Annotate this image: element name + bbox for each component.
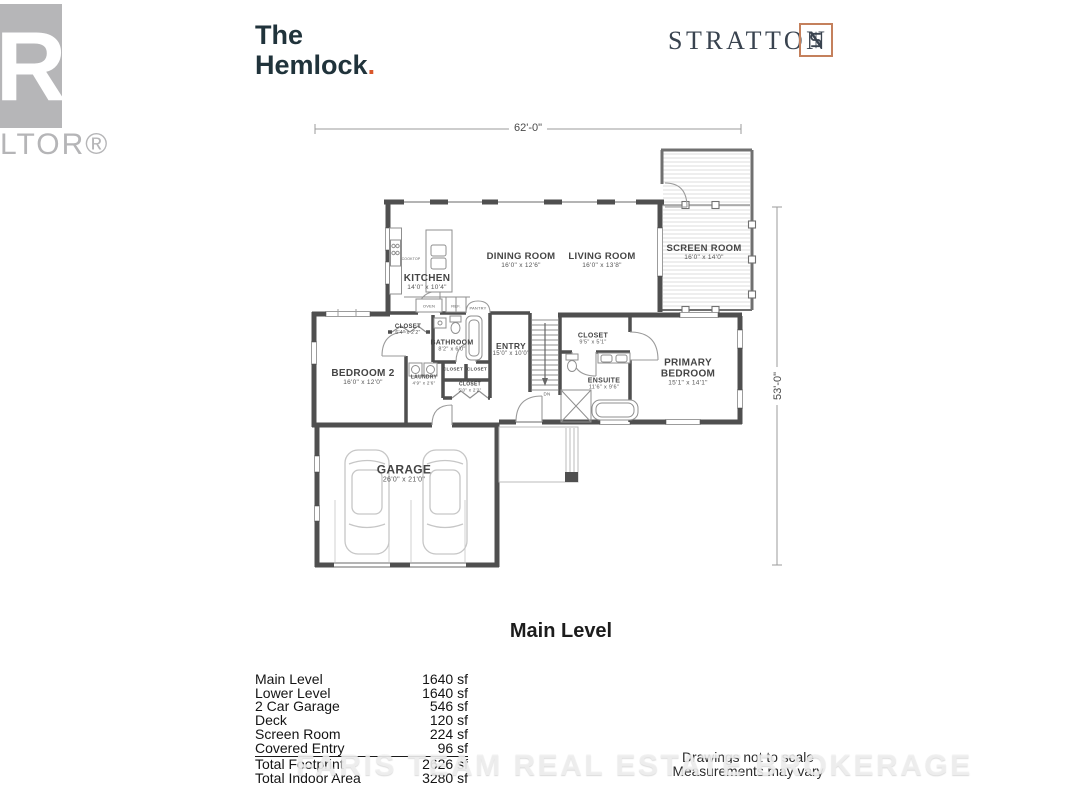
room-label-closet-small-b: CLOSET — [467, 367, 487, 372]
brokerage-watermark: FARIS TEAM REAL ESTATE BROKERAGE — [296, 749, 973, 783]
room-label-closet-bedroom2: CLOSET6'4" x 2'2" — [395, 324, 421, 336]
dimension-width-label: 62'-0" — [509, 122, 547, 134]
room-label-screen-room: SCREEN ROOM16'0" x 14'0" — [666, 243, 741, 261]
screen-room-structure — [661, 150, 756, 314]
room-label-laundry: LAUNDRY4'9" x 2'6" — [411, 375, 437, 386]
plan-title-line1: The — [255, 20, 375, 50]
stairs — [532, 320, 558, 390]
room-label-closet-primary: CLOSET9'5" x 5'1" — [578, 333, 608, 346]
level-title: Main Level — [481, 620, 641, 643]
plan-title-line2: Hemlock. — [255, 50, 375, 80]
room-label-entry: ENTRY15'0" x 10'0" — [493, 341, 530, 357]
covered-entry-porch — [499, 427, 578, 482]
floorplan-flyer: R LTOR® The Hemlock. STRATTON — [0, 0, 1080, 810]
realtor-logo-letter: R — [0, 17, 66, 115]
label-fridge: REF. — [451, 304, 460, 309]
realtor-logo-text: LTOR® — [0, 128, 109, 162]
label-cooktop: COOKTOP — [402, 257, 421, 261]
label-stairs-dn: DN — [544, 392, 551, 397]
room-label-closet-entry: CLOSET5'0" x 2'2" — [459, 382, 482, 393]
dimension-height-label: 53'-0" — [772, 367, 784, 405]
room-label-ensuite: ENSUITE11'6" x 9'6" — [588, 378, 620, 391]
floor-plan-drawing — [300, 110, 800, 610]
room-label-kitchen: KITCHEN14'0" x 10'4" — [404, 273, 451, 291]
stratton-monogram-icon — [805, 29, 827, 51]
room-label-primary-bedroom: PRIMARY BEDROOM 15'1" x 14'1" — [661, 358, 715, 387]
room-label-closet-small-a: CLOSET — [443, 367, 463, 372]
label-pantry: PANTRY — [469, 306, 486, 311]
bathroom-fixtures — [434, 316, 482, 360]
room-label-bathroom: BATHROOM8'2" x 6'0" — [430, 340, 473, 353]
realtor-logo-icon: R — [0, 4, 62, 128]
room-label-bedroom2: BEDROOM 216'0" x 12'0" — [331, 368, 394, 386]
room-label-living: LIVING ROOM16'0" x 13'8" — [568, 251, 635, 269]
kitchen-fixtures — [390, 228, 471, 312]
room-label-dining: DINING ROOM16'0" x 12'6" — [487, 251, 556, 269]
garage-door-tracks — [335, 500, 465, 562]
builder-monogram-icon — [799, 23, 833, 57]
title-accent-period: . — [368, 50, 376, 80]
room-label-garage: GARAGE26'0" x 21'0" — [377, 463, 431, 484]
label-oven: OVEN — [423, 304, 435, 309]
plan-title: The Hemlock. — [255, 20, 375, 80]
